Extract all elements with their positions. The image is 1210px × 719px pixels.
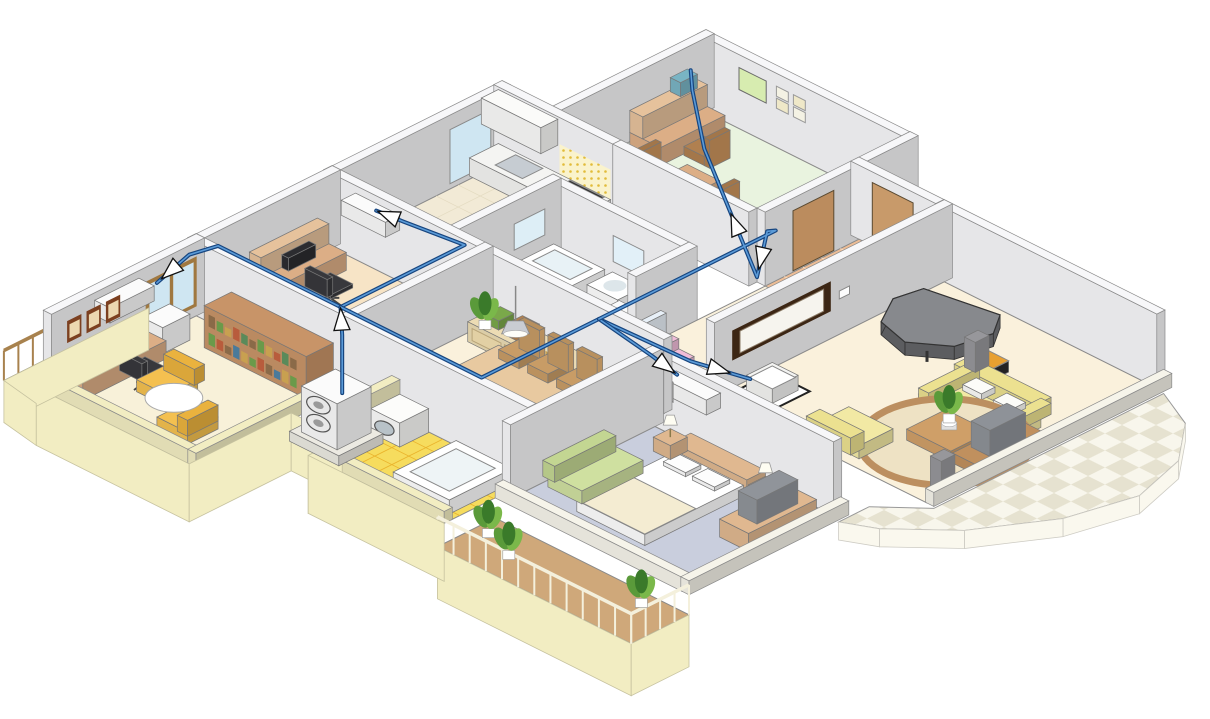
floorplan-illustration: Isometric cutaway illustration of a hous…: [0, 0, 1210, 719]
scene-canvas: Isometric cutaway illustration of a hous…: [0, 0, 1210, 719]
washbasin-bowl: [603, 280, 626, 292]
scene-items: [4, 30, 1186, 696]
study-round-table: [145, 383, 203, 412]
speaker: [964, 330, 989, 372]
